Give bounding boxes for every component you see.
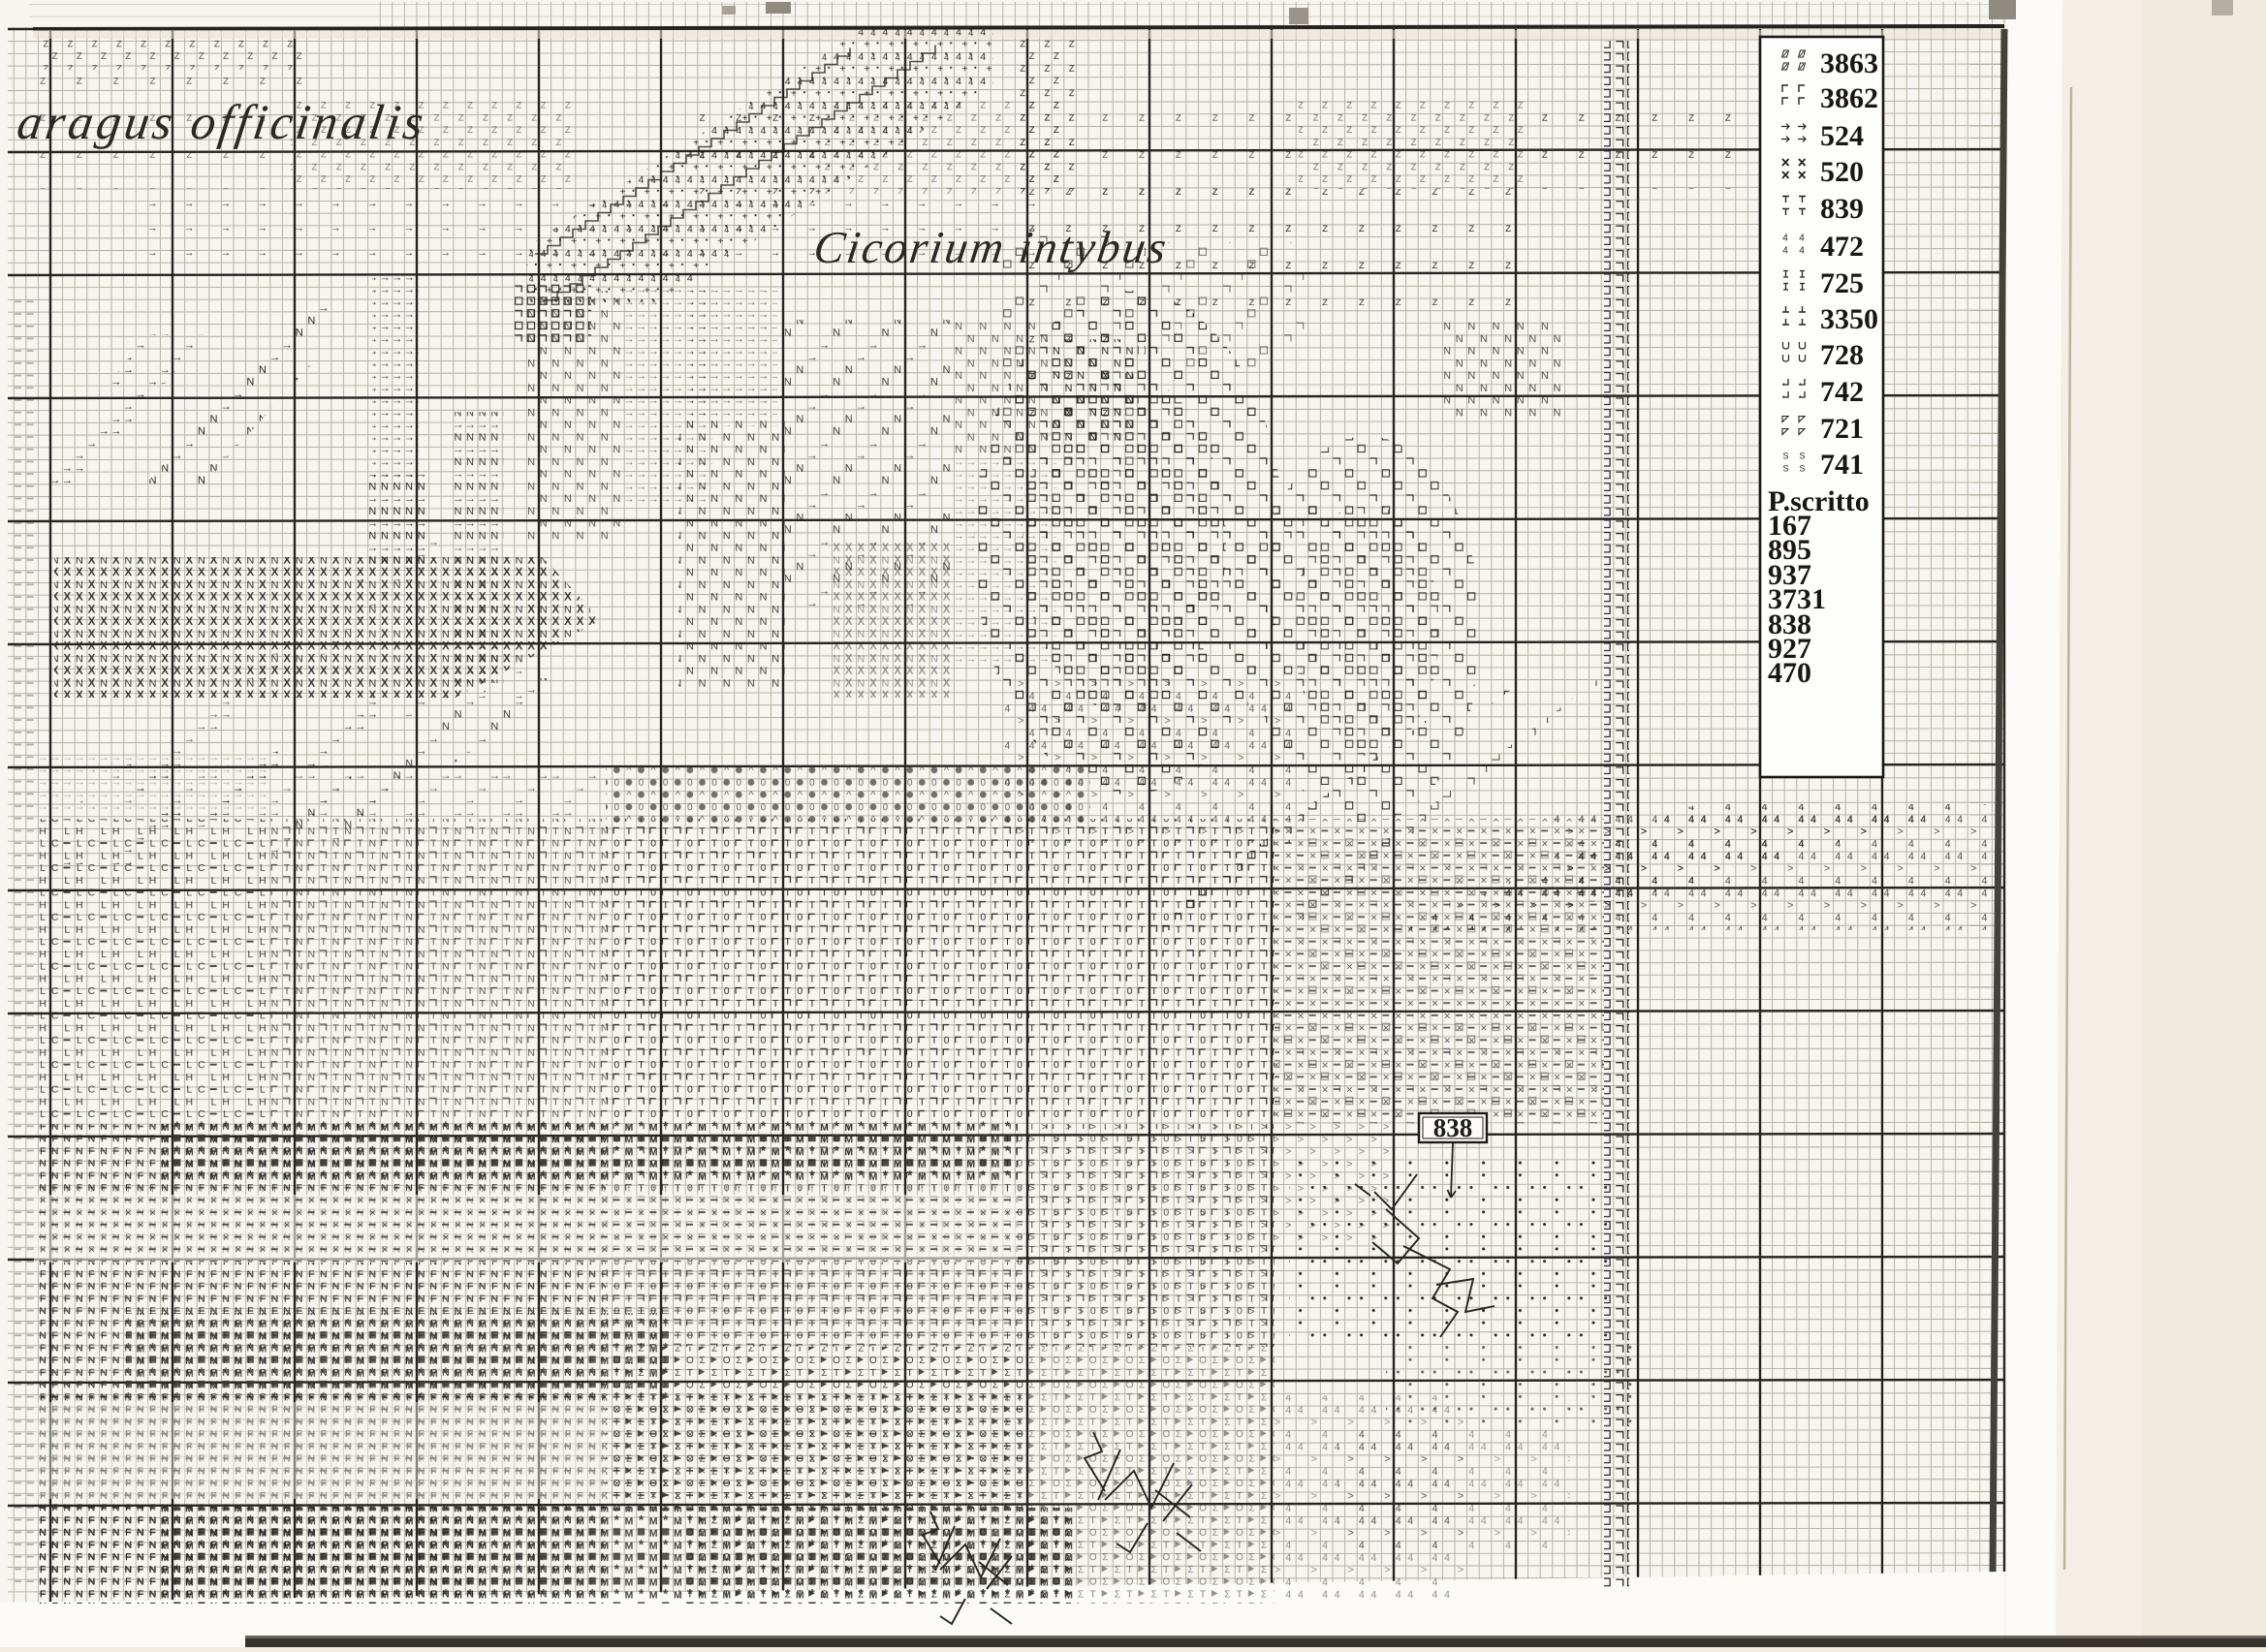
svg-text:aragus officinalis: aragus officinalis: [14, 95, 429, 150]
svg-text:S: S: [1799, 452, 1805, 461]
svg-text:728: 728: [1820, 339, 1864, 371]
svg-text:4: 4: [1782, 234, 1788, 244]
svg-text:3862: 3862: [1820, 82, 1878, 114]
svg-text:725: 725: [1820, 267, 1864, 299]
svg-text:470: 470: [1768, 657, 1811, 689]
svg-text:520: 520: [1820, 156, 1864, 188]
svg-text:4: 4: [1799, 234, 1805, 244]
svg-text:S: S: [1782, 452, 1788, 461]
svg-text:S: S: [1782, 464, 1788, 474]
svg-text:838: 838: [1433, 1113, 1473, 1142]
svg-text:S: S: [1799, 464, 1805, 474]
svg-text:741: 741: [1820, 449, 1864, 481]
svg-text:721: 721: [1820, 413, 1864, 445]
svg-text:524: 524: [1820, 120, 1864, 152]
svg-text:472: 472: [1820, 231, 1864, 263]
svg-text:3863: 3863: [1820, 47, 1878, 79]
svg-text:4: 4: [1799, 246, 1805, 257]
svg-text:Cicorium intybus: Cicorium intybus: [810, 223, 1171, 273]
svg-text:4: 4: [1782, 246, 1788, 257]
svg-text:839: 839: [1820, 193, 1864, 225]
svg-text:742: 742: [1820, 376, 1864, 408]
svg-text:3350: 3350: [1820, 303, 1878, 335]
